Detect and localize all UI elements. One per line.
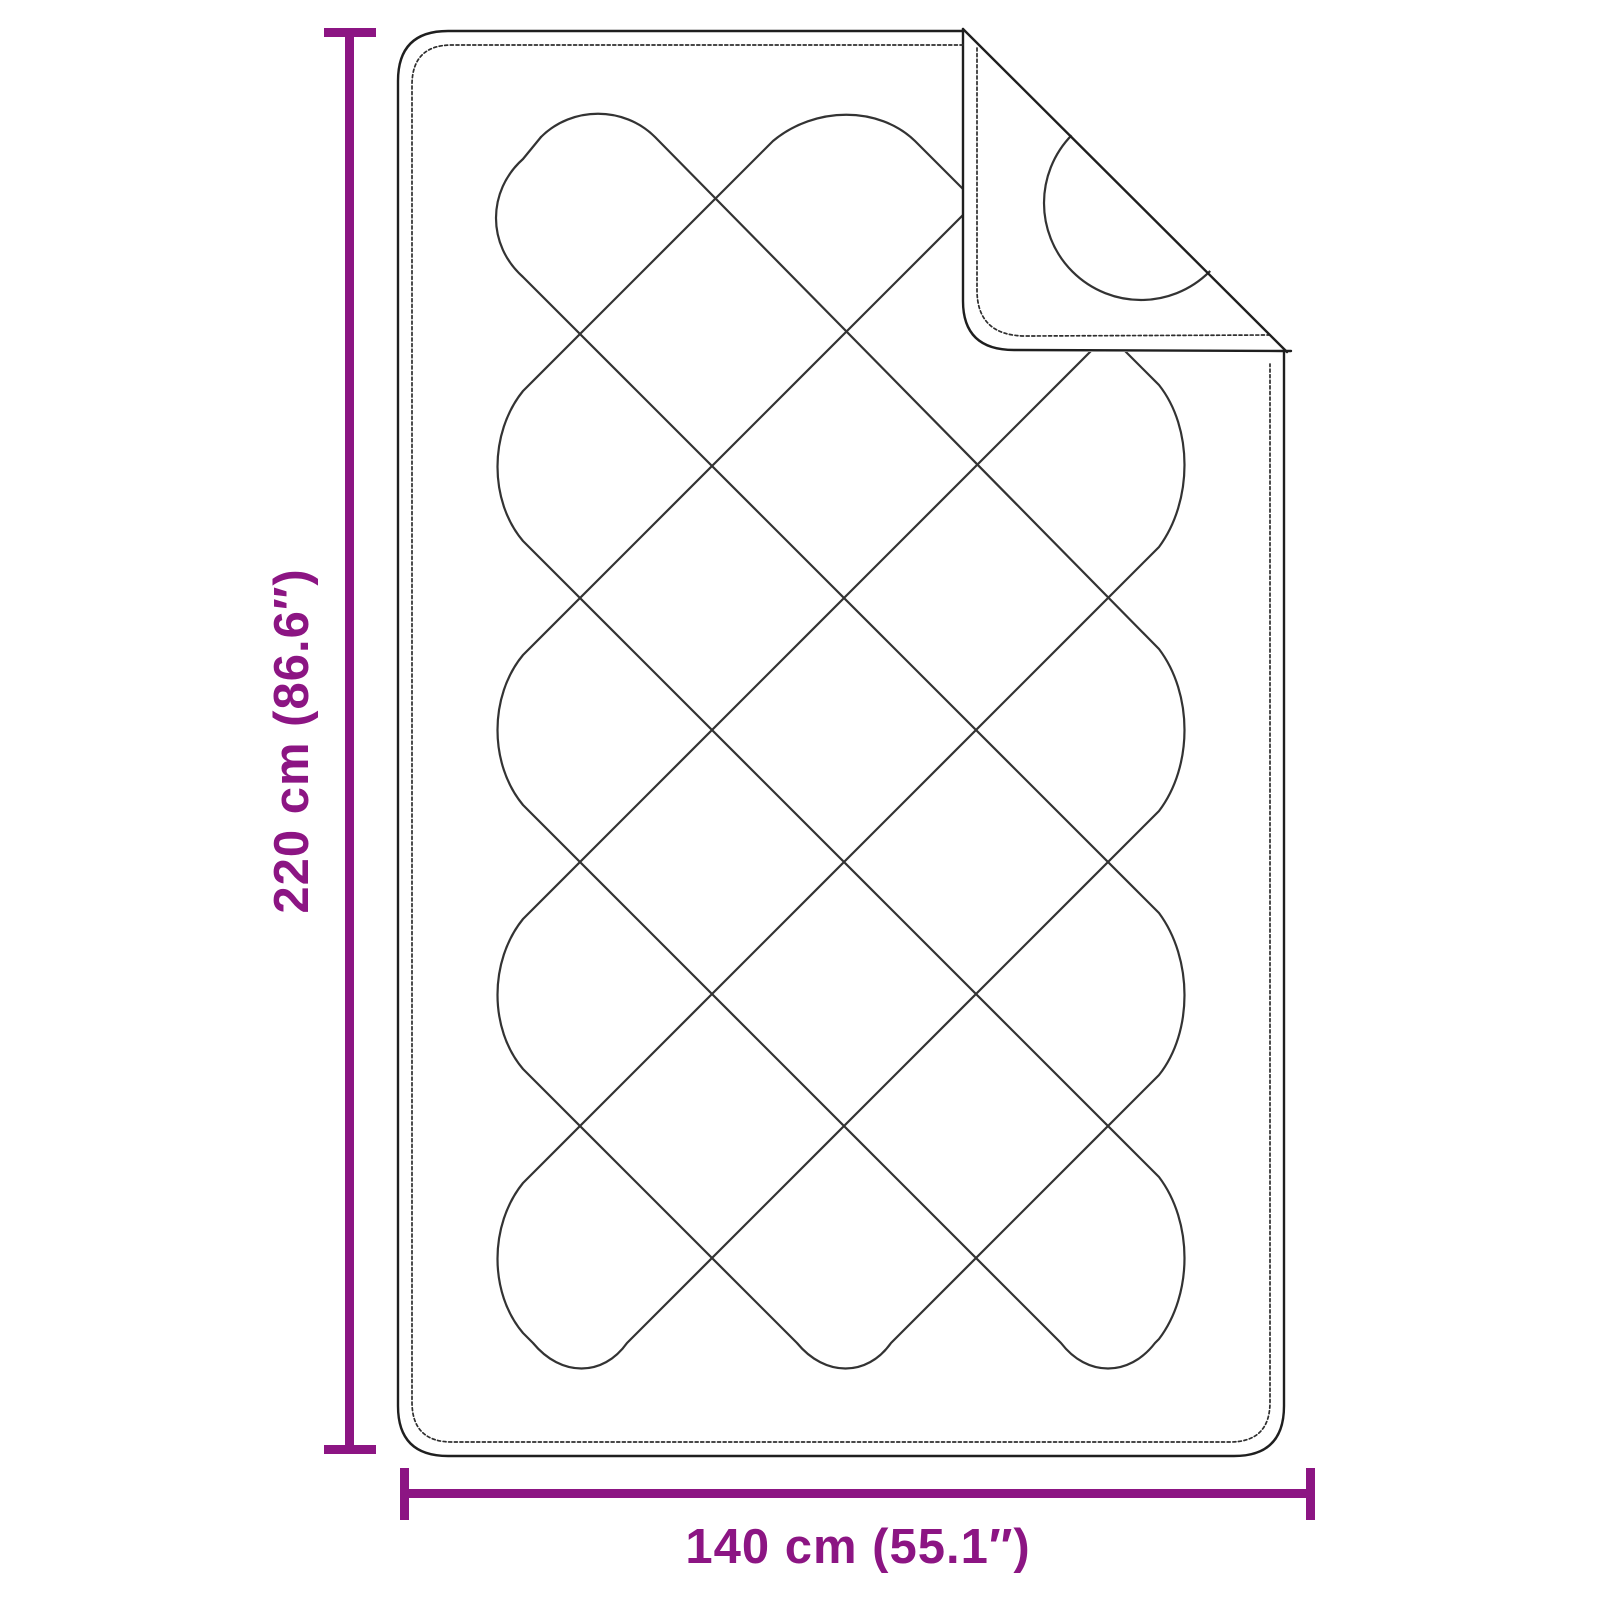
width-dimension-line [400, 1489, 1315, 1498]
width-dimension-cap-left [400, 1468, 409, 1520]
height-dimension-cap-top [324, 28, 376, 37]
height-dimension-cap-bottom [324, 1445, 376, 1454]
height-dimension-line [345, 28, 354, 1454]
height-dimension: 220 cm (86.6″) [265, 28, 376, 1454]
height-label: 220 cm (86.6″) [265, 568, 319, 913]
width-label: 140 cm (55.1″) [685, 1520, 1030, 1574]
folded-corner [963, 29, 1293, 352]
product-dimension-diagram: 220 cm (86.6″) 140 cm (55.1″) [0, 0, 1600, 1600]
width-dimension: 140 cm (55.1″) [400, 1468, 1315, 1574]
width-dimension-cap-right [1306, 1468, 1315, 1520]
blanket-diagram-canvas: 220 cm (86.6″) 140 cm (55.1″) [0, 0, 1600, 1600]
